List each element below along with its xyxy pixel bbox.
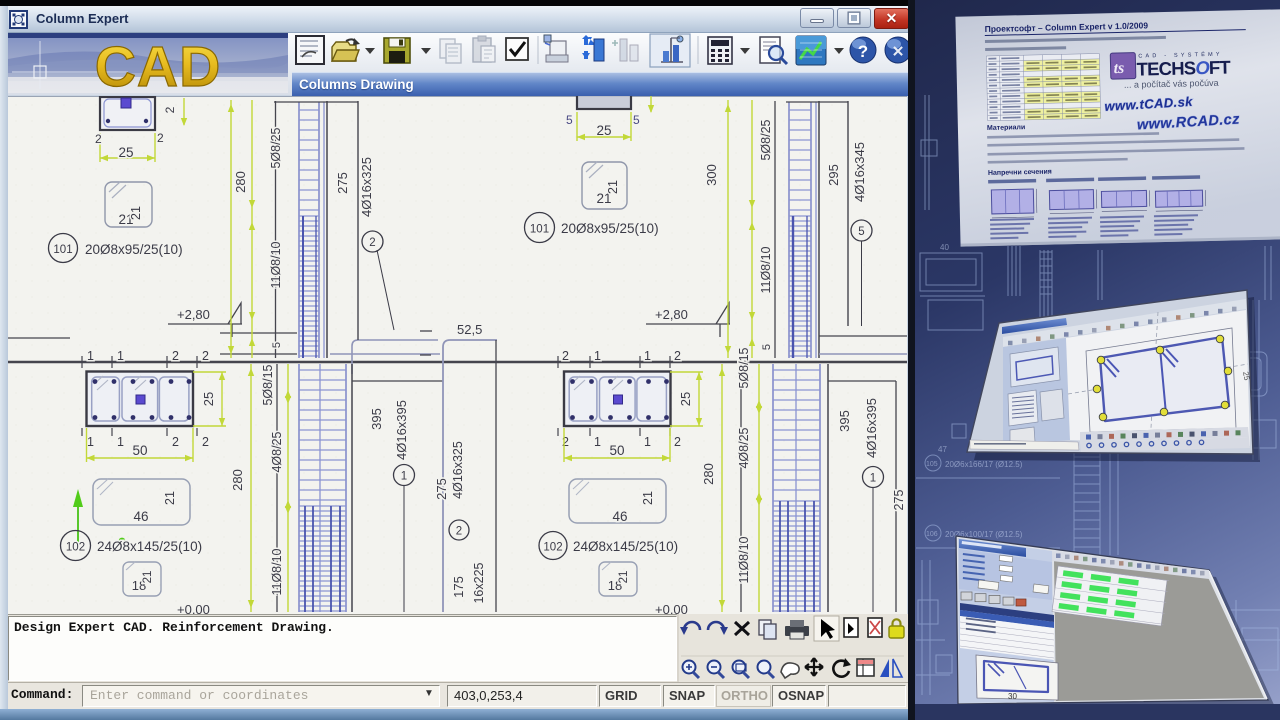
svg-text:+2,80: +2,80 (177, 307, 210, 322)
svg-text:46: 46 (612, 509, 627, 524)
svg-text:11Ø8/10: 11Ø8/10 (269, 241, 283, 288)
svg-text:11Ø8/10: 11Ø8/10 (737, 536, 751, 583)
svg-text:1: 1 (870, 473, 876, 485)
svg-text:1: 1 (87, 435, 94, 449)
svg-text:2: 2 (456, 526, 462, 538)
svg-text:5Ø8/15: 5Ø8/15 (737, 347, 751, 388)
svg-text:175: 175 (451, 576, 466, 598)
svg-text:+0,00: +0,00 (177, 602, 210, 614)
svg-text:2: 2 (163, 106, 177, 113)
svg-text:395: 395 (837, 410, 852, 432)
svg-text:4Ø16x395: 4Ø16x395 (394, 400, 409, 460)
svg-text:275: 275 (892, 490, 906, 511)
svg-text:1: 1 (117, 435, 124, 449)
svg-text:40: 40 (940, 243, 949, 252)
svg-text:280: 280 (233, 171, 248, 193)
svg-text:295: 295 (826, 164, 841, 186)
svg-text:5: 5 (858, 226, 864, 238)
svg-text:11Ø8/10: 11Ø8/10 (759, 246, 773, 293)
svg-text:+0,00: +0,00 (655, 602, 688, 614)
svg-text:275: 275 (335, 172, 350, 194)
svg-text:46: 46 (133, 509, 148, 524)
svg-text:5Ø8/25: 5Ø8/25 (759, 119, 773, 160)
svg-text:47: 47 (938, 445, 947, 454)
svg-text:21: 21 (606, 180, 620, 194)
svg-text:5: 5 (566, 113, 573, 127)
svg-text:280: 280 (701, 463, 716, 485)
svg-text:16x225: 16x225 (472, 562, 486, 603)
svg-text:5: 5 (761, 344, 773, 350)
svg-text:4Ø16x395: 4Ø16x395 (864, 398, 879, 458)
svg-text:25: 25 (201, 392, 216, 406)
svg-text:50: 50 (132, 443, 147, 458)
svg-text:2: 2 (562, 435, 569, 449)
svg-text:4Ø16x325: 4Ø16x325 (451, 441, 465, 499)
svg-text:2: 2 (95, 132, 102, 146)
svg-text:5: 5 (271, 342, 283, 348)
svg-text:2: 2 (202, 435, 209, 449)
svg-text:2: 2 (172, 349, 179, 363)
svg-text:52,5: 52,5 (457, 322, 482, 337)
svg-text:11Ø8/10: 11Ø8/10 (270, 548, 284, 595)
svg-text:102: 102 (66, 542, 85, 554)
svg-text:✕: ✕ (892, 44, 905, 61)
svg-text:2: 2 (562, 349, 569, 363)
svg-text:1: 1 (594, 349, 601, 363)
svg-text:21: 21 (618, 571, 630, 584)
svg-text:TECHSOFT: TECHSOFT (1136, 56, 1231, 79)
svg-text:21: 21 (129, 206, 143, 220)
svg-text:Напречни сечения: Напречни сечения (988, 169, 1052, 177)
svg-text:106: 106 (926, 531, 938, 538)
svg-text:1: 1 (401, 471, 407, 483)
svg-text:24Ø8x145/25(10): 24Ø8x145/25(10) (97, 539, 202, 554)
svg-text:2: 2 (202, 349, 209, 363)
svg-text:?: ? (858, 42, 868, 61)
svg-text:5Ø8/25: 5Ø8/25 (269, 127, 283, 168)
svg-text:+2,80: +2,80 (655, 307, 688, 322)
svg-text:4Ø8/25: 4Ø8/25 (270, 431, 284, 472)
svg-text:ts: ts (1113, 60, 1124, 77)
svg-text:395: 395 (369, 408, 384, 430)
svg-text:CAD: CAD (95, 35, 222, 93)
svg-text:20Ø8x95/25(10): 20Ø8x95/25(10) (561, 221, 659, 236)
svg-text:105: 105 (926, 461, 938, 468)
svg-text:2: 2 (674, 435, 681, 449)
svg-text:101: 101 (530, 224, 549, 236)
svg-text:21: 21 (641, 491, 655, 505)
svg-text:102: 102 (543, 542, 562, 554)
svg-text:24Ø8x145/25(10): 24Ø8x145/25(10) (573, 539, 678, 554)
svg-text:1: 1 (644, 349, 651, 363)
svg-text:275: 275 (434, 478, 449, 500)
svg-text:1: 1 (87, 349, 94, 363)
svg-text:5Ø8/15: 5Ø8/15 (261, 364, 275, 405)
svg-text:2: 2 (674, 349, 681, 363)
svg-text:20Ø6x166/17 (Ø12.5): 20Ø6x166/17 (Ø12.5) (945, 460, 1023, 469)
svg-text:2: 2 (172, 435, 179, 449)
svg-text:21: 21 (163, 491, 177, 505)
svg-text:300: 300 (704, 164, 719, 186)
svg-text:50: 50 (609, 443, 624, 458)
svg-text:25: 25 (118, 145, 133, 160)
svg-text:101: 101 (53, 244, 72, 256)
svg-text:5: 5 (633, 113, 640, 127)
svg-text:4Ø16x345: 4Ø16x345 (852, 142, 867, 202)
svg-text:280: 280 (230, 469, 245, 491)
svg-text:25: 25 (678, 392, 693, 406)
svg-text:2: 2 (157, 131, 164, 145)
svg-text:20Ø8x95/25(10): 20Ø8x95/25(10) (85, 242, 183, 257)
svg-text:4Ø16x325: 4Ø16x325 (359, 157, 374, 217)
svg-text:1: 1 (594, 435, 601, 449)
svg-text:25: 25 (596, 123, 611, 138)
svg-text:30: 30 (1008, 692, 1017, 701)
svg-text:1: 1 (117, 349, 124, 363)
svg-text:1: 1 (644, 435, 651, 449)
svg-text:Материали: Материали (987, 124, 1026, 132)
svg-text:4Ø8/25: 4Ø8/25 (737, 427, 751, 468)
svg-text:2: 2 (369, 237, 375, 249)
svg-text:21: 21 (142, 571, 154, 584)
